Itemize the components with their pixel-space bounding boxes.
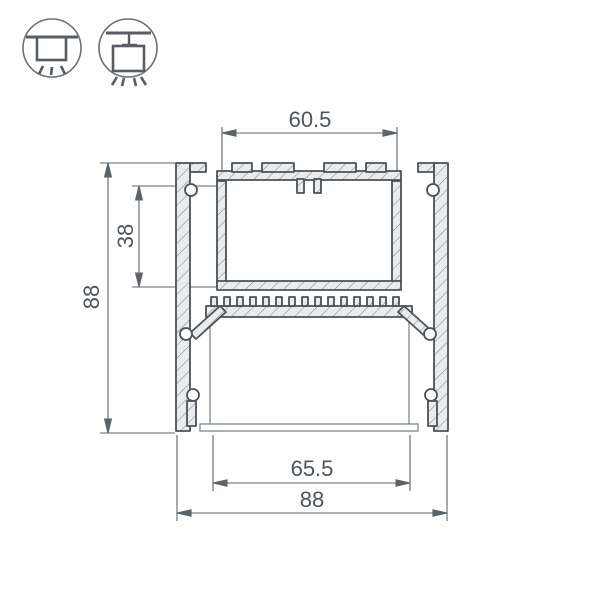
drawing-canvas: 60.5 38 88 65.5 88 (0, 0, 600, 600)
heatsink-plate (206, 297, 412, 317)
channel-left-wall (217, 181, 226, 283)
dim-top-slot-width-label: 60.5 (289, 107, 332, 133)
diffuser-outline (200, 318, 418, 431)
dim-diffuser-width-label: 65.5 (291, 456, 334, 482)
dimension-overall-height (100, 163, 175, 433)
top-right-screw-boss (427, 184, 439, 196)
bottom-right-hook (425, 389, 437, 426)
top-right-flange (418, 163, 434, 172)
bottom-left-hook (187, 389, 199, 426)
channel-right-wall (392, 181, 401, 283)
dim-overall-width-label: 88 (300, 487, 324, 513)
mid-left-screw-boss (180, 328, 192, 340)
dimension-top-slot-width (222, 127, 397, 194)
dim-upper-channel-depth-label: 38 (113, 224, 139, 248)
mid-right-screw-boss (424, 328, 436, 340)
profile-body (176, 163, 448, 431)
top-left-screw-boss (185, 184, 197, 196)
top-cover (217, 163, 401, 193)
channel-bottom-plate (217, 281, 401, 290)
dim-overall-height-label: 88 (79, 285, 105, 309)
top-left-flange (190, 163, 206, 172)
